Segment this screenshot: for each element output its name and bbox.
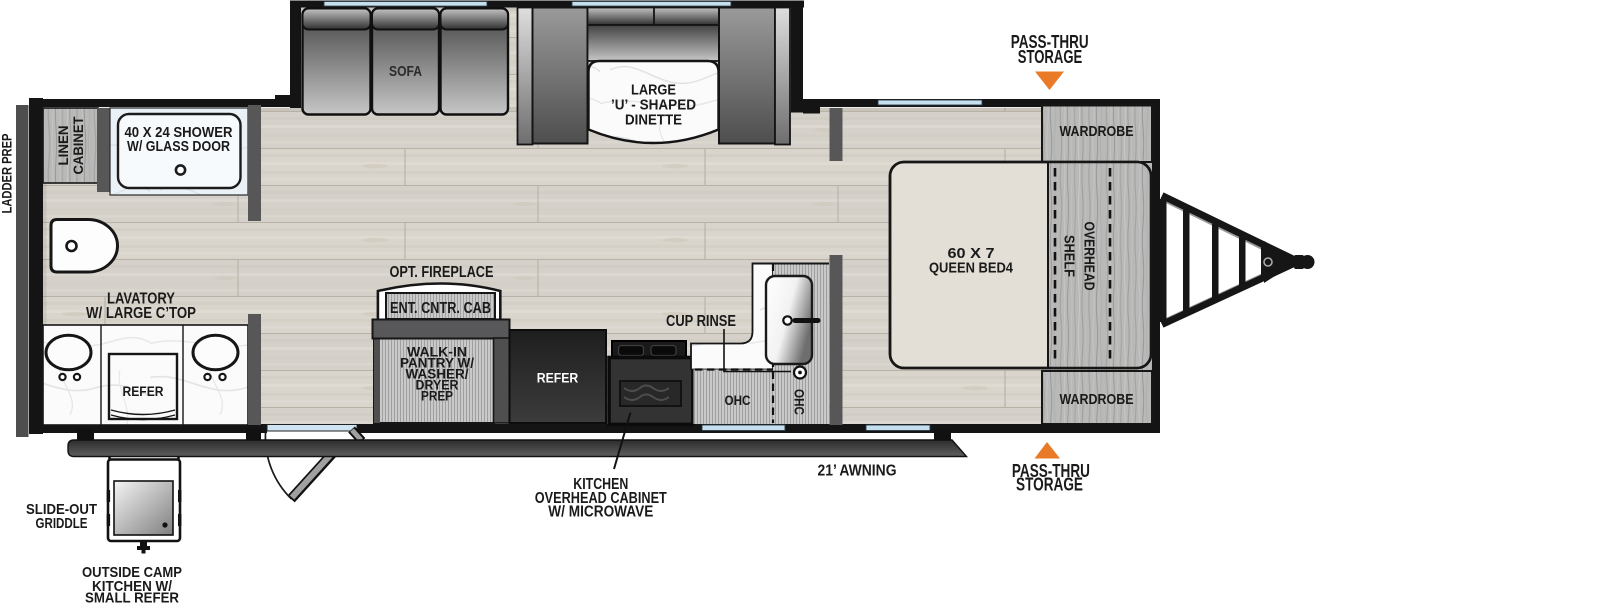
svg-text:OVERHEAD: OVERHEAD: [1081, 222, 1098, 291]
svg-text:REFER: REFER: [537, 371, 579, 386]
svg-text:CABINET: CABINET: [71, 116, 86, 175]
svg-text:WARDROBE: WARDROBE: [1060, 391, 1134, 408]
svg-text:OHC: OHC: [792, 389, 807, 415]
svg-text:PREP: PREP: [421, 388, 453, 403]
svg-text:SHELF: SHELF: [1061, 235, 1078, 277]
svg-text:QUEEN BED4: QUEEN BED4: [929, 260, 1014, 277]
svg-text:WARDROBE: WARDROBE: [1060, 123, 1134, 140]
svg-text:LADDER PREP: LADDER PREP: [0, 134, 15, 214]
svg-text:W/ LARGE C’TOP: W/ LARGE C’TOP: [86, 305, 196, 322]
svg-text:CUP RINSE: CUP RINSE: [666, 313, 736, 330]
svg-text:W/ MICROWAVE: W/ MICROWAVE: [548, 504, 653, 521]
svg-text:ENT. CNTR. CAB: ENT. CNTR. CAB: [390, 300, 491, 317]
svg-text:STORAGE: STORAGE: [1018, 47, 1083, 67]
svg-text:W/ GLASS DOOR: W/ GLASS DOOR: [127, 138, 230, 155]
svg-text:OPT. FIREPLACE: OPT. FIREPLACE: [390, 264, 494, 281]
svg-text:SOFA: SOFA: [389, 63, 422, 80]
svg-text:STORAGE: STORAGE: [1016, 475, 1083, 495]
svg-text:SMALL REFER: SMALL REFER: [85, 590, 179, 603]
svg-text:GRIDDLE: GRIDDLE: [36, 515, 88, 532]
svg-text:LINEN: LINEN: [56, 126, 71, 166]
svg-text:REFER: REFER: [123, 384, 164, 399]
svg-text:OHC: OHC: [725, 393, 751, 408]
svg-text:21’ AWNING: 21’ AWNING: [818, 463, 897, 480]
svg-text:DINETTE: DINETTE: [625, 111, 682, 128]
